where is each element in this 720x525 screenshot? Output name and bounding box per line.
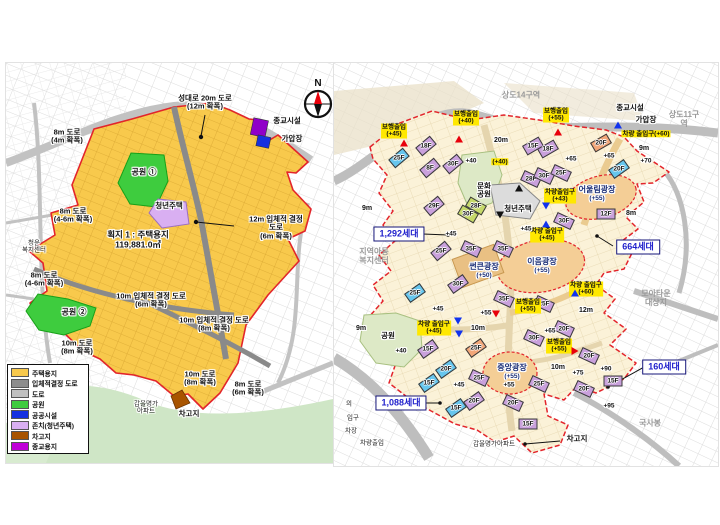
elevation-label: +55 (480, 309, 491, 316)
entrance-triangle-icon (492, 311, 500, 318)
legend-swatch (11, 379, 29, 388)
plaza-label: 어울림광장(+55) (579, 186, 616, 202)
legend-item: 도로 (11, 389, 85, 398)
site-label: 획지 1 : 주택용지 119,881.0㎡ (107, 230, 169, 249)
district-label: 국사봉 (639, 420, 661, 429)
unit-count-badge: 1,088세대 (375, 396, 426, 411)
road-width-label: 20m (494, 137, 508, 145)
legend-label: 차고지 (32, 431, 51, 441)
legend-item: 공공시설 (11, 410, 85, 419)
compass-n-label: N (314, 78, 321, 89)
road-label: 10m 도로 (8m 확폭) (61, 340, 93, 357)
district-label: 상도14구역 (502, 92, 540, 101)
left-zoning-map: 성대로 20m 도로 (12m 확폭)8m 도로 (4m 확폭)종교시설가압장공… (5, 62, 334, 464)
road-width-label: 10m (471, 325, 485, 333)
elevation-label: +70 (640, 157, 651, 164)
entrance-triangle-icon (554, 129, 562, 136)
legend-swatch (11, 400, 29, 409)
plaza-name: 썬큰광장 (469, 262, 498, 271)
legend-item: 존치(청년주택) (11, 421, 85, 430)
access-label: 차량출입구 (+43) (544, 189, 576, 204)
legend-item: 공원 (11, 400, 85, 409)
entrance-triangle-icon (572, 347, 579, 355)
feature-label: 종교시설 (616, 104, 644, 112)
feature-label: 가압장 (636, 116, 657, 124)
legend-label: 입체적결정 도로 (32, 378, 78, 388)
road-label: 10m 입체적 결정 도로 (6m 확폭) (116, 293, 186, 310)
legend-swatch (11, 421, 29, 430)
entrance-triangle-icon (454, 318, 462, 325)
small-label: 차량출입 (360, 439, 384, 446)
legend-label: 도로 (32, 389, 45, 399)
road-width-label: 9m (362, 205, 372, 213)
legend-swatch (11, 442, 29, 451)
road-width-label: 12m (579, 307, 593, 315)
road-label: 10m 도로 (8m 확폭) (184, 371, 216, 388)
district-label: 지역아동 복지센터 (359, 248, 388, 266)
small-label: 갑을명가아파트 (473, 440, 515, 447)
plaza-name: 중앙광장 (497, 363, 526, 372)
elevation-label: +45 (432, 305, 443, 312)
plaza-elevation: (+50) (469, 272, 498, 279)
elevation-label: +65 (544, 327, 555, 334)
plaza-elevation: (+55) (497, 373, 526, 380)
road-label: 8m 도로 (4-6m 확폭) (54, 208, 92, 225)
legend-item: 차고지 (11, 431, 85, 440)
legend: 주택용지입체적결정 도로도로공원공공시설존치(청년주택)차고지종교용지 (7, 364, 89, 454)
plaza-name: 이음광장 (527, 257, 556, 266)
legend-item: 종교용지 (11, 442, 85, 451)
small-label: 차장 (345, 427, 357, 434)
park-label: 공원 ① (132, 169, 157, 178)
small-label: 갑을명가 아파트 (134, 401, 158, 416)
plaza-label: 이음광장(+55) (527, 258, 556, 274)
legend-swatch (11, 410, 29, 419)
entrance-triangle-icon (542, 203, 550, 210)
road-label: 8m 도로 (4-6m 확폭) (25, 272, 63, 289)
elevation-label: +75 (572, 369, 583, 376)
elevation-label: +45 (453, 381, 464, 388)
entrance-triangle-icon (496, 212, 504, 219)
access-label: 차량 출입구(+60) (621, 130, 670, 137)
plaza-elevation: (+55) (579, 195, 616, 202)
access-label: 보행출입 (+45) (381, 124, 407, 139)
feature-label: 차고지 (567, 435, 588, 443)
plaza-name: 어울림광장 (579, 185, 616, 194)
elevation-label: +45 (445, 230, 456, 237)
road-width-label: 8m (626, 210, 636, 218)
elevation-label: +65 (603, 152, 614, 159)
legend-label: 공공시설 (32, 410, 57, 420)
access-label: 차량 출입구 (+45) (530, 228, 564, 243)
legend-label: 종교용지 (32, 441, 57, 451)
legend-item: 주택용지 (11, 368, 85, 377)
elevation-label: +95 (603, 402, 614, 409)
page: 성대로 20m 도로 (12m 확폭)8m 도로 (4m 확폭)종교시설가압장공… (0, 0, 720, 525)
entrance-triangle-icon (542, 221, 550, 228)
plaza-label: 중앙광장(+55) (497, 364, 526, 380)
legend-item: 입체적결정 도로 (11, 379, 85, 388)
access-label: (+40) (491, 158, 508, 165)
elevation-label: +55 (503, 381, 514, 388)
district-label: 모아타운 대상지 (641, 290, 670, 308)
legend-label: 존치(청년주택) (32, 420, 74, 430)
unit-count-badge: 1,292세대 (373, 227, 424, 242)
road-width-label: 9m (639, 145, 649, 153)
right-block-plan-map: 18F25F8F30F15F18F20F20F25F28F30F29F28F30… (333, 62, 719, 467)
unit-count-badge: 160세대 (642, 360, 686, 375)
small-label: 입구 (347, 414, 359, 421)
road-label: 8m 도로 (6m 확폭) (232, 381, 264, 398)
access-label: 보행출입 (+55) (546, 339, 572, 354)
access-label: 보행출입 (+40) (453, 111, 479, 126)
plaza-elevation: (+55) (527, 267, 556, 274)
road-label: 성대로 20m 도로 (12m 확폭) (178, 95, 232, 112)
road-width-label: 10m (551, 364, 565, 372)
unit-count-badge: 664세대 (616, 240, 660, 255)
legend-swatch (11, 389, 29, 398)
elevation-label: +40 (395, 347, 406, 354)
road-label: 10m 입체적 결정 도로 (8m 확폭) (179, 317, 249, 334)
feat-label: 차고지 (179, 410, 200, 418)
road-label: 12m 입체적 결정 도로 (6m 확폭) (248, 215, 305, 240)
feat-label: 종교시설 (273, 117, 301, 125)
legend-swatch (11, 431, 29, 440)
right-map-labels: 상도14구역상도11구역모아타운 대상지국사봉지역아동 복지센터종교시설가압장차… (334, 63, 718, 466)
compass: N (300, 77, 334, 123)
feature-label: 공원 (381, 332, 395, 340)
access-label: 보행출입 (+55) (515, 299, 541, 314)
entrance-triangle-icon (400, 140, 408, 147)
elevation-label: +40 (465, 157, 476, 164)
legend-label: 주택용지 (32, 368, 57, 378)
park-label: 공원 ② (62, 309, 87, 318)
elevation-label: +65 (565, 155, 576, 162)
entrance-triangle-icon (455, 331, 463, 338)
entrance-triangle-icon (571, 290, 579, 297)
entrance-triangle-icon (455, 136, 463, 143)
access-label: 차량 출입구 (+45) (417, 321, 451, 336)
feature-label: 문화 공원 (477, 183, 491, 200)
elevation-label: +45 (520, 225, 531, 232)
small-label: 의 (346, 400, 352, 407)
elevation-label: +90 (600, 365, 611, 372)
road-label: 8m 도로 (4m 확폭) (51, 129, 83, 146)
road-width-label: 9m (356, 325, 366, 333)
entrance-triangle-icon (515, 185, 523, 192)
district-label: 상도11구역 (667, 111, 701, 129)
plaza-label: 썬큰광장(+50) (469, 263, 498, 279)
access-label: 보행출입 (+55) (543, 108, 569, 123)
small-label: 청운 복지센터 (22, 240, 46, 255)
legend-label: 공원 (32, 399, 45, 409)
entrance-triangle-icon (614, 122, 622, 129)
legend-swatch (11, 368, 29, 377)
feat-label: 가압장 (282, 135, 303, 143)
feature-label: 청년주택 (504, 205, 532, 213)
feat-label: 청년주택 (155, 202, 183, 210)
